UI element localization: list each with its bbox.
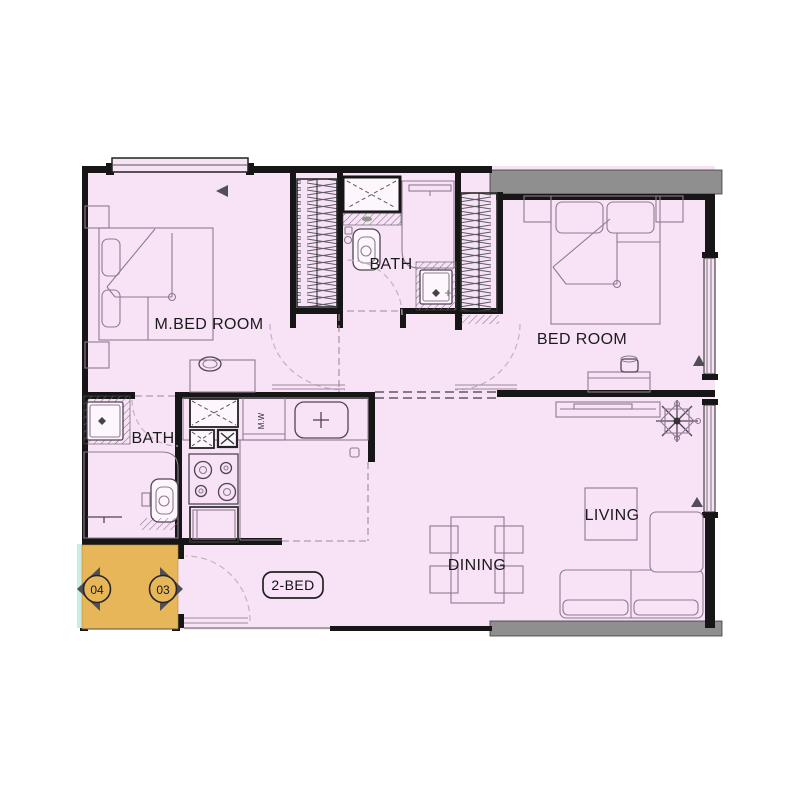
room-label-master-bedroom: M.BED ROOM	[155, 316, 264, 333]
floor-plan-page: M.BED ROOM BATH	[0, 0, 800, 800]
closet-threshold	[461, 315, 499, 324]
vanity-sink-left	[87, 402, 123, 440]
slab-top	[490, 170, 722, 194]
unit-marker-label: 03	[156, 583, 170, 597]
shower-tray	[343, 177, 400, 212]
unit-type-label: 2-BED	[271, 577, 314, 593]
room-label-bath-left: BATH	[131, 430, 174, 447]
unit-marker-label: 04	[90, 583, 104, 597]
window-right-bedroom	[704, 258, 715, 374]
room-label-living: LIVING	[585, 507, 640, 524]
room-label-bath-top: BATH	[369, 256, 412, 273]
vanity-sink-top	[420, 270, 452, 304]
floor-plan-svg: M.BED ROOM BATH	[0, 0, 800, 800]
slab-bottom	[490, 621, 722, 636]
room-label-bedroom: BED ROOM	[537, 331, 627, 348]
microwave-label: M.W	[257, 412, 266, 429]
window-right-living	[704, 405, 715, 512]
room-label-dining: DINING	[448, 557, 506, 574]
unit-type-badge: 2-BED	[263, 572, 323, 598]
soap-dish	[362, 217, 372, 222]
bath-threshold	[140, 518, 178, 530]
kitchen-sink-unit	[190, 399, 238, 448]
